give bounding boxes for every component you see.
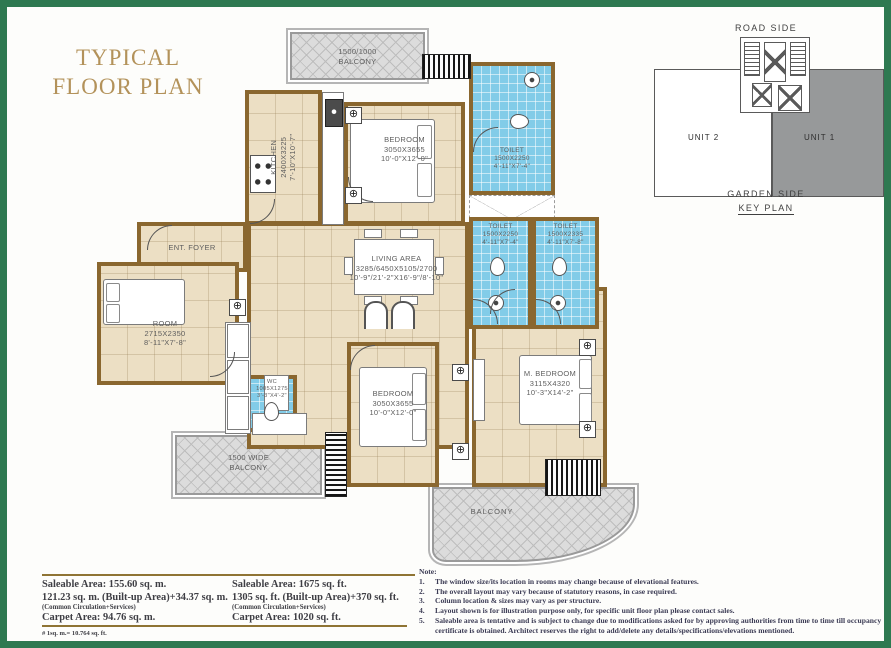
- balcony-top-label: 1500/1000 BALCONY: [290, 47, 425, 66]
- toilet-fixture-symbol: [552, 257, 567, 276]
- room-name: BEDROOM: [344, 135, 465, 145]
- gold-rule-top: [42, 574, 415, 576]
- basin-symbol: [524, 72, 540, 88]
- column-marker-icon: ⊕: [452, 364, 469, 381]
- arch-symbol: [391, 301, 415, 329]
- room-dim-mm: 2400X3225: [278, 102, 288, 212]
- note-item: 4. Layout shown is for illustration purp…: [419, 606, 883, 616]
- chair-symbol: [400, 229, 418, 238]
- sofa-symbol: [252, 413, 307, 435]
- toilet-top-label: TOILET 1500X2250 4'-11"X7'-4": [472, 147, 552, 172]
- vent-hatch-top: [422, 54, 471, 79]
- saleable-area-metric: Saleable Area: 155.60 sq. m.: [42, 579, 230, 592]
- room-left-label: ROOM 2715X2350 8'-11"X7'-8": [110, 319, 220, 348]
- column-marker-icon: ⊕: [229, 299, 246, 316]
- saleable-area-imperial: Saleable Area: 1675 sq. ft.: [232, 579, 420, 592]
- note-item: 3. Column location & sizes may vary as p…: [419, 596, 883, 606]
- room-dim-mm: 1005X1275: [247, 386, 297, 393]
- chair-symbol: [364, 229, 382, 238]
- room-name: TOILET: [470, 223, 531, 231]
- sofa-cushion-symbol: [227, 396, 249, 430]
- carpet-area-metric: Carpet Area: 94.76 sq. m.: [42, 612, 230, 625]
- room-dim-mm: 3050X3655: [349, 399, 437, 409]
- room-dim-ft: 10'-0"X12'-0": [349, 408, 437, 418]
- toilet-mid-right-label: TOILET 1500X2335 4'-11"X7'-8": [533, 223, 598, 248]
- room-dim-ft: 10'-0"X12'-0": [344, 154, 465, 164]
- room-name: TOILET: [472, 147, 552, 155]
- balcony-dim: 1500/1000: [290, 47, 425, 57]
- toilet-top-room: [469, 62, 555, 195]
- note-number: 3.: [419, 596, 435, 606]
- note-number: 4.: [419, 606, 435, 616]
- vent-hatch-bottom-right: [545, 459, 601, 496]
- brochure-page: TYPICAL FLOOR PLAN: [0, 0, 891, 648]
- kitchen-sink-symbol: [325, 99, 343, 127]
- note-text: Saleable area is tentative and is subjec…: [435, 616, 883, 636]
- vent-hatch-left: [325, 432, 347, 497]
- room-dim-ft: 10'-9"/21'-2"X16'-9"/8'-10": [314, 273, 479, 283]
- note-text: Layout shown is for illustration purpose…: [435, 606, 883, 616]
- note-text: Column location & sizes may vary as per …: [435, 596, 883, 606]
- garden-side-label: GARDEN SIDE: [640, 189, 891, 199]
- entrance-foyer-label: ENT. FOYER: [137, 243, 247, 253]
- room-dim-mm: 1500X2250: [472, 155, 552, 163]
- room-dim-ft: 7'-10"X10'-7": [288, 102, 298, 212]
- bedroom-bottom-label: BEDROOM 3050X3655 10'-0"X12'-0": [349, 389, 437, 418]
- notes-heading: Note:: [419, 567, 883, 577]
- stair-symbol: [790, 42, 806, 76]
- arch-symbol: [364, 301, 388, 329]
- area-statement-metric: Saleable Area: 155.60 sq. m. 121.23 sq. …: [42, 579, 230, 625]
- builtup-area-imperial: 1305 sq. ft. (Built-up Area)+370 sq. ft.: [232, 592, 420, 605]
- stair-symbol: [744, 42, 760, 76]
- toilet-fixture-symbol: [490, 257, 505, 276]
- room-dim-mm: 1500X2250: [470, 231, 531, 239]
- key-plan: ROAD SIDE UNIT 2 UNIT 1 GARDEN SIDE KEY …: [640, 17, 891, 225]
- column-marker-icon: ⊕: [579, 421, 596, 438]
- carpet-area-imperial: Carpet Area: 1020 sq. ft.: [232, 612, 420, 625]
- notes-block: Note: 1. The window size/its location in…: [419, 567, 883, 636]
- balcony-name: BALCONY: [175, 463, 322, 473]
- common-circulation-metric: (Common Circulation+Services): [42, 604, 230, 612]
- note-text: The overall layout may vary because of s…: [435, 587, 883, 597]
- room-dim-ft: 3'-3"X4'-2": [247, 393, 297, 400]
- room-dim-mm: 3050X3655: [344, 145, 465, 155]
- balcony-name: BALCONY: [437, 507, 547, 517]
- unit2-label: UNIT 2: [688, 133, 719, 142]
- room-dim-ft: 4'-11"X7'-4": [472, 163, 552, 171]
- balcony-left-label: 1500 WIDE BALCONY: [175, 453, 322, 472]
- room-name: TOILET: [533, 223, 598, 231]
- room-dim-ft: 10'-3"X14'-2": [494, 388, 606, 398]
- note-text: The window size/its location in rooms ma…: [435, 577, 883, 587]
- lift-shaft-symbol: [752, 83, 772, 107]
- balcony-name: BALCONY: [290, 57, 425, 67]
- note-number: 5.: [419, 616, 435, 636]
- wardrobe-symbol: [473, 359, 485, 421]
- toilet-fixture-symbol: [264, 402, 279, 421]
- note-item: 5. Saleable area is tentative and is sub…: [419, 616, 883, 636]
- room-dim-mm: 1500X2335: [533, 231, 598, 239]
- living-area-label: LIVING AREA 3285/6450X5105/2700 10'-9"/2…: [314, 254, 479, 283]
- room-dim-mm: 3285/6450X5105/2700: [314, 264, 479, 274]
- common-circulation-imperial: (Common Circulation+Services): [232, 604, 420, 612]
- toilet-mid-left-label: TOILET 1500X2250 4'-11"X7'-4": [470, 223, 531, 248]
- pillow-symbol: [417, 163, 432, 197]
- conversion-footnote: # 1sq. m.= 10.764 sq. ft.: [42, 630, 107, 637]
- room-name: WC: [247, 379, 297, 386]
- balcony-bottom: [432, 487, 635, 562]
- lift-shaft-symbol: [778, 85, 802, 111]
- column-marker-icon: ⊕: [452, 443, 469, 460]
- builtup-area-metric: 121.23 sq. m. (Built-up Area)+34.37 sq. …: [42, 592, 230, 605]
- column-marker-icon: ⊕: [345, 107, 362, 124]
- room-name: ENT. FOYER: [137, 243, 247, 253]
- room-dim-ft: 8'-11"X7'-8": [110, 338, 220, 348]
- floor-plan: ⊕ ⊕ ⊕ ⊕ ⊕ ⊕ ⊕ 1500/1000 BALCONY KITCHEN …: [92, 17, 654, 573]
- kitchen-label: KITCHEN 2400X3225 7'-10"X10'-7": [269, 102, 298, 212]
- key-plan-label-text: KEY PLAN: [738, 203, 793, 215]
- gold-rule-bottom: [42, 625, 407, 627]
- room-dim-mm: 2715X2350: [110, 329, 220, 339]
- key-plan-label: KEY PLAN: [640, 203, 891, 215]
- lift-shaft-symbol: [764, 42, 786, 82]
- pillow-symbol: [579, 393, 592, 423]
- room-dim-mm: 3115X4320: [494, 379, 606, 389]
- pillow-symbol: [106, 283, 120, 302]
- road-side-label: ROAD SIDE: [640, 23, 891, 33]
- master-bedroom-label: M. BEDROOM 3115X4320 10'-3"X14'-2": [494, 369, 606, 398]
- column-marker-icon: ⊕: [579, 339, 596, 356]
- note-number: 2.: [419, 587, 435, 597]
- room-name: ROOM: [110, 319, 220, 329]
- note-item: 2. The overall layout may vary because o…: [419, 587, 883, 597]
- room-name: BEDROOM: [349, 389, 437, 399]
- wc-label: WC 1005X1275 3'-3"X4'-2": [247, 379, 297, 400]
- room-name: M. BEDROOM: [494, 369, 606, 379]
- area-statement-imperial: Saleable Area: 1675 sq. ft. 1305 sq. ft.…: [232, 579, 420, 625]
- unit1-label: UNIT 1: [804, 133, 835, 142]
- note-number: 1.: [419, 577, 435, 587]
- bedroom-top-label: BEDROOM 3050X3655 10'-0"X12'-0": [344, 135, 465, 164]
- room-dim-ft: 4'-11"X7'-4": [470, 239, 531, 247]
- balcony-bottom-label: BALCONY: [437, 507, 547, 517]
- column-marker-icon: ⊕: [345, 187, 362, 204]
- room-dim-ft: 4'-11"X7'-8": [533, 239, 598, 247]
- room-name: KITCHEN: [269, 102, 279, 212]
- note-item: 1. The window size/its location in rooms…: [419, 577, 883, 587]
- room-name: LIVING AREA: [314, 254, 479, 264]
- balcony-dim: 1500 WIDE: [175, 453, 322, 463]
